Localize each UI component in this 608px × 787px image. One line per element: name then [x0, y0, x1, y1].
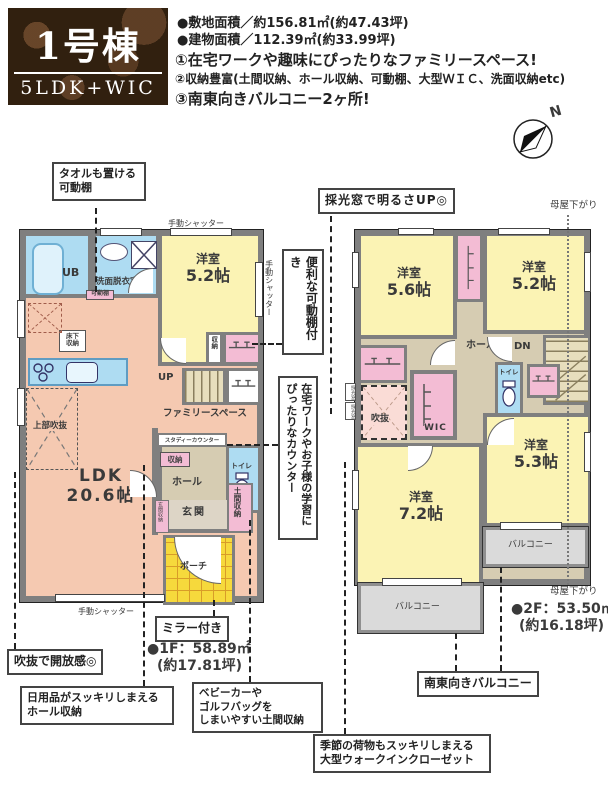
feature-2: ②収納豊富(土間収納、ホール収納、可動棚、大型ＷＩＣ、洗面収納etc) [175, 70, 565, 87]
closet-2f-left [361, 345, 407, 383]
callout-balcony-se: 南東向きバルコニー [417, 671, 539, 697]
floor-storage-text: 床下収納 [66, 333, 80, 347]
void-2f-label: 吹抜 [371, 414, 389, 425]
compass-icon [510, 114, 558, 162]
connector [455, 633, 457, 671]
hanger-icon [458, 236, 480, 299]
window [498, 228, 550, 235]
window [17, 388, 25, 426]
void-above-label: 上部吹抜 [33, 421, 67, 431]
toilet-icon [501, 380, 517, 408]
connector [213, 600, 215, 616]
building-badge: 1号棟 5LDK+WIC [8, 8, 168, 105]
dn-label: DN [514, 341, 531, 353]
closet-2f-center [455, 236, 483, 302]
shutter-label-bottom: 手動シャッター [78, 607, 134, 617]
building-number: 1号棟 [8, 16, 168, 70]
balcony-right-label: バルコニー [508, 540, 553, 551]
bedroom-1f-name: 洋室 [196, 252, 220, 266]
layout-label: 5LDK+WIC [8, 77, 168, 99]
bathtub-icon [32, 243, 64, 295]
bedroom-72-name: 洋室 [409, 490, 433, 504]
building-area: ●建物面積／112.39㎡(約33.99坪) [177, 29, 396, 48]
floorplan-flyer: 1号棟 5LDK+WIC ●敷地面積／約156.81㎡(約47.43坪) ●建物… [0, 0, 608, 787]
badge-divider [14, 72, 162, 74]
up-label: UP [158, 372, 173, 384]
window [398, 228, 434, 235]
floor1-area-m2: ●1F：58.89㎡ [147, 641, 251, 657]
callout-shelf: 便利な可動棚付き [282, 249, 324, 355]
window [500, 522, 562, 530]
window [255, 262, 263, 317]
feature-1: ①在宅ワークや趣味にぴったりなファミリースペース! [175, 49, 537, 70]
callout-doma: ベビーカーや ゴルフバッグを しまいやすい土間収納 [192, 682, 323, 733]
bedroom-72-label: 洋室 7.2帖 [390, 490, 452, 524]
kitchen-sink-icon [66, 362, 98, 383]
floor2-area-m2: ●2F：53.50㎡ [511, 601, 608, 617]
connector [344, 462, 346, 734]
bedroom-72-size: 7.2帖 [399, 504, 443, 523]
bedroom-52-name: 洋室 [522, 260, 546, 274]
callout-hall-storage: 日用品がスッキリしまえる ホール収納 [20, 686, 174, 725]
porch-label: ポーチ [180, 562, 207, 573]
window [352, 252, 359, 288]
moya-label-top: 母屋下がり [550, 200, 598, 211]
floor2-area-tsubo: (約16.18坪) [519, 618, 604, 634]
bedroom-53-size: 5.3帖 [514, 452, 558, 471]
stairs-1f [182, 368, 226, 405]
hall-1f-label: ホール [172, 477, 202, 489]
feature-3: ③南東向きバルコニー2ヶ所! [175, 88, 370, 109]
floor1-area: ●1F：58.89㎡ (約17.81坪) [147, 641, 251, 675]
moya-label-bottom: 母屋下がり [550, 586, 598, 597]
bedroom-closet-label: 収納 [209, 336, 217, 349]
skylight-label-1: 採光窓 [345, 383, 356, 401]
connector [143, 465, 145, 686]
bedroom-56-label: 洋室 5.6帖 [378, 266, 440, 300]
bedroom-52-label: 洋室 5.2帖 [500, 260, 568, 294]
entrance-storage-label: 玄関収納 [157, 502, 163, 522]
floor-storage-label: 床下収納 [59, 330, 86, 352]
shutter-label-right: 手動シャッター [264, 260, 274, 316]
window [382, 578, 462, 586]
bedroom-1f-size: 5.2帖 [186, 266, 230, 285]
bedroom-52-size: 5.2帖 [512, 274, 556, 293]
entrance-label: 玄関 [182, 507, 206, 519]
connector [227, 444, 278, 446]
window [170, 228, 232, 236]
callout-wic-big: 季節の荷物もスッキリしまえる 大型ウォークインクローゼット [313, 734, 491, 773]
study-counter: スタディーカウンター [157, 433, 227, 447]
connector [14, 472, 16, 649]
callout-mirror: ミラー付き [155, 616, 229, 642]
connector [330, 216, 332, 414]
bedroom-53-label: 洋室 5.3帖 [505, 438, 567, 472]
window [100, 228, 142, 236]
moya-dotted-line [567, 215, 569, 585]
bedroom-56-name: 洋室 [397, 266, 421, 280]
bedroom-53-name: 洋室 [524, 438, 548, 452]
balcony-bottom-label: バルコニー [395, 602, 440, 613]
toilet-1f-label: トイレ [231, 462, 252, 470]
ldk-name: LDK [79, 466, 123, 486]
bedroom-1f-label: 洋室 5.2帖 [168, 252, 248, 286]
hall-closet: 収納 [160, 452, 190, 467]
callout-skylight: 採光窓で明るさUP◎ [318, 188, 455, 214]
void-2f [361, 385, 407, 440]
callout-void: 吹抜で開放感◎ [7, 649, 103, 675]
hanger-icon [530, 367, 557, 395]
layout-x-marker [28, 303, 62, 333]
wic-label: WIC [424, 423, 447, 434]
skylight-label-2: 採光窓 [345, 402, 356, 420]
hanger-icon [226, 335, 258, 362]
callout-towel-shelf: タオルも置ける 可動棚 [52, 162, 146, 201]
floor2-area: ●2F：53.50㎡ (約16.18坪) [511, 601, 608, 635]
washer-icon [131, 241, 157, 269]
callout-counter: 在宅ワークやお子様の学習にぴったりなカウンター [278, 376, 318, 540]
ldk-size: 20.6帖 [67, 486, 136, 506]
connector [500, 567, 502, 671]
movable-shelf-label: 可動棚 [86, 290, 114, 300]
window [584, 252, 591, 292]
closet-2f-hall [527, 364, 560, 398]
window [55, 594, 165, 602]
closet-hanger-b [226, 368, 258, 405]
connector [252, 343, 282, 345]
connector [249, 520, 251, 682]
stove-icon [31, 361, 57, 383]
hanger-icon [361, 348, 404, 380]
window [584, 432, 591, 472]
floor1-area-tsubo: (約17.81坪) [157, 658, 242, 674]
closet-hanger-a [223, 332, 258, 365]
sink-icon [100, 243, 128, 261]
ub-label: UB [62, 266, 79, 279]
toilet-2f-label: トイレ [499, 369, 519, 377]
hanger-icon [229, 371, 258, 402]
shutter-label-top: 手動シャッター [168, 219, 224, 229]
family-space-label: ファミリースペース [163, 408, 247, 419]
connector [95, 208, 97, 292]
window [17, 300, 25, 338]
doma-storage-label: 土間収納 [233, 487, 242, 517]
bedroom-56-size: 5.6帖 [387, 280, 431, 299]
window [352, 470, 359, 510]
